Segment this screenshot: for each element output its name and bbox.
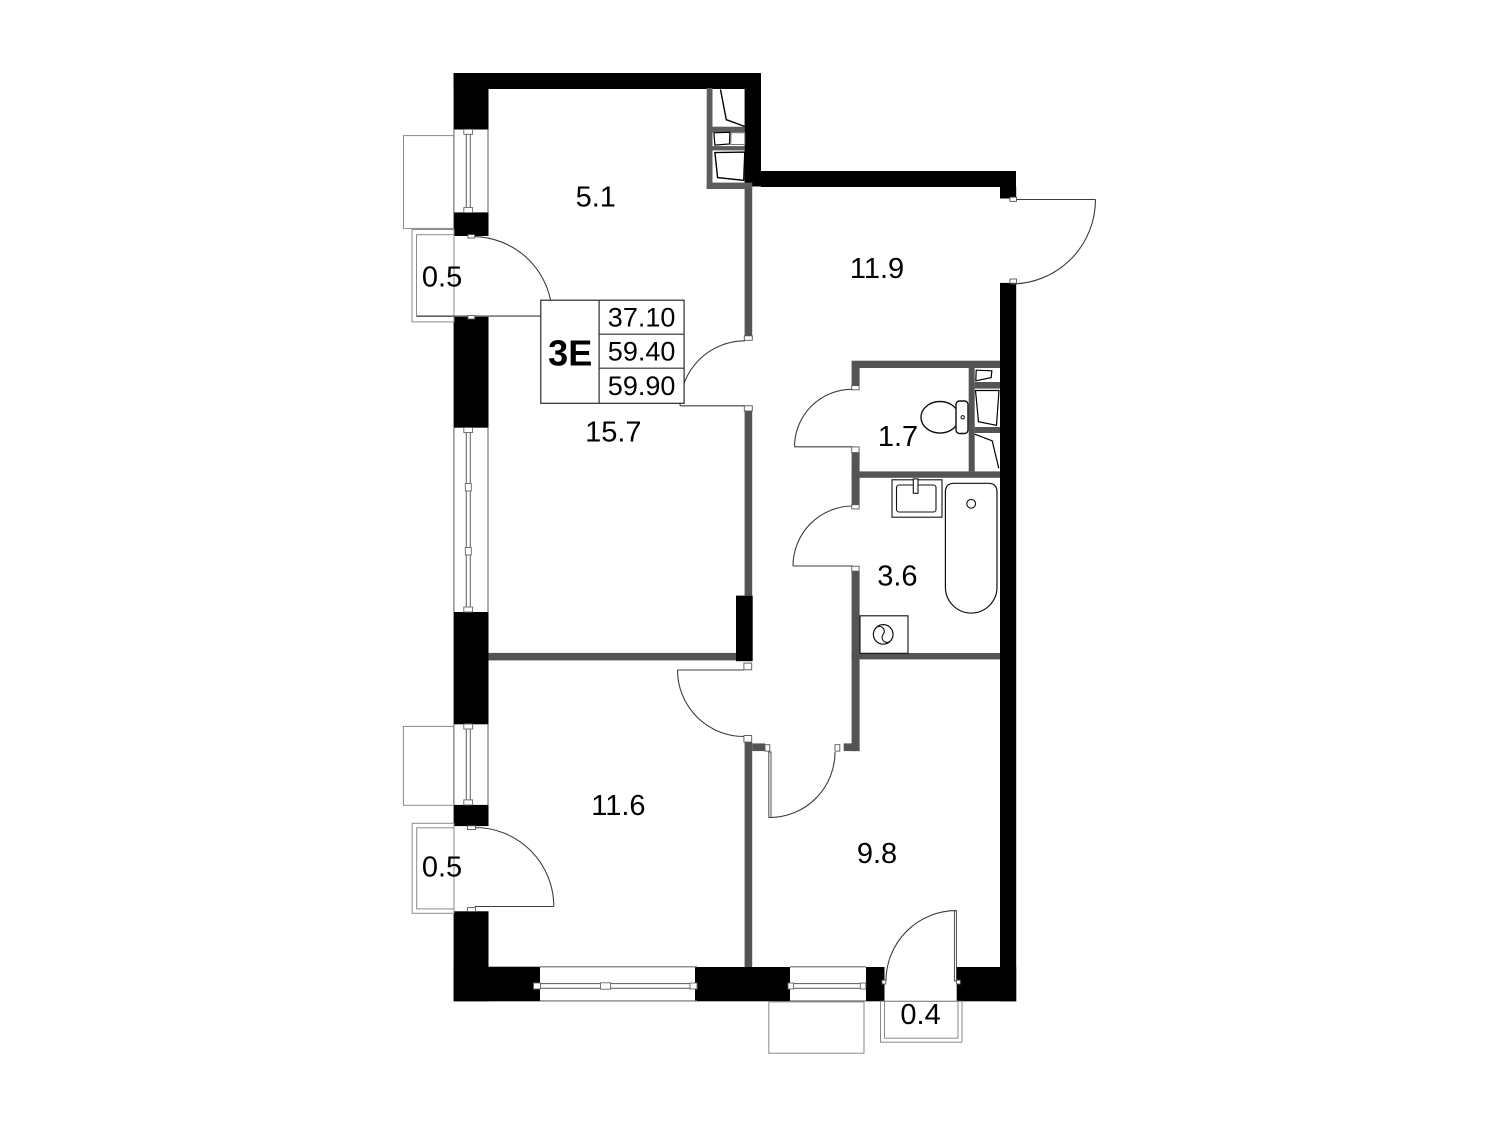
svg-text:0.5: 0.5 — [422, 261, 462, 293]
svg-text:5.1: 5.1 — [576, 182, 616, 214]
svg-text:1.7: 1.7 — [878, 421, 918, 453]
svg-text:11.6: 11.6 — [591, 790, 645, 822]
svg-text:59.90: 59.90 — [608, 371, 676, 401]
svg-text:3E: 3E — [548, 332, 592, 373]
svg-text:9.8: 9.8 — [857, 838, 897, 870]
svg-text:59.40: 59.40 — [608, 337, 676, 367]
svg-text:0.5: 0.5 — [422, 852, 462, 884]
svg-text:11.9: 11.9 — [850, 253, 904, 285]
svg-text:15.7: 15.7 — [585, 416, 641, 448]
svg-text:0.4: 0.4 — [900, 999, 940, 1031]
svg-text:37.10: 37.10 — [608, 303, 676, 333]
svg-text:3.6: 3.6 — [877, 560, 917, 592]
